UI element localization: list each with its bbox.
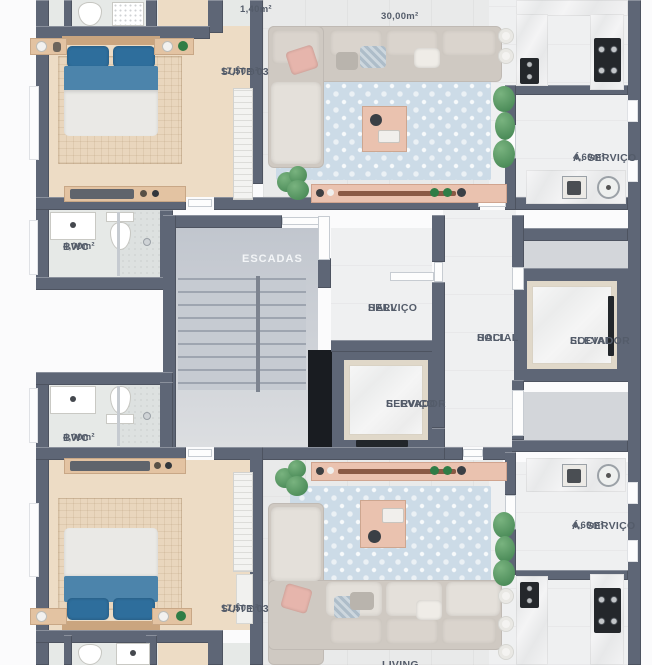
door — [188, 199, 212, 207]
plant — [493, 86, 517, 170]
floor-buffer-bottom — [524, 392, 628, 440]
shower-tray — [112, 2, 144, 26]
decor — [327, 189, 334, 196]
plant — [493, 512, 517, 586]
pillow — [360, 46, 386, 68]
door — [512, 390, 524, 436]
wall — [432, 215, 445, 262]
bench — [70, 461, 150, 471]
plate — [498, 28, 514, 44]
washer-door — [567, 469, 581, 483]
decor — [457, 188, 466, 197]
window — [627, 100, 638, 122]
plant-pot — [430, 188, 439, 197]
window — [29, 86, 39, 160]
pillow — [336, 52, 358, 70]
nightstand — [154, 38, 194, 55]
plate — [498, 48, 514, 64]
wall — [214, 447, 445, 460]
washer-door — [567, 181, 581, 195]
decor — [140, 190, 147, 197]
decor — [327, 467, 334, 474]
decor — [154, 462, 161, 469]
wall — [318, 258, 331, 288]
plant-pot — [443, 466, 452, 475]
door — [318, 216, 330, 260]
floor-plan: 1,40m² 30,00m² SUÍTE 03 17,50m² Á. SERVI… — [0, 0, 652, 665]
lamp — [36, 611, 47, 622]
kettle — [368, 530, 381, 543]
bed-pillow — [67, 598, 109, 620]
bed-blanket — [64, 66, 158, 92]
decor — [457, 466, 466, 475]
sofa-cushion — [330, 618, 382, 644]
bed-headboard — [62, 36, 160, 45]
window — [627, 482, 638, 504]
drain — [606, 473, 611, 478]
plant-pot — [443, 188, 452, 197]
window — [29, 388, 38, 443]
stove — [594, 38, 621, 82]
pillow — [416, 600, 442, 620]
lamp — [158, 611, 169, 622]
drain — [606, 185, 611, 190]
plant-pot — [176, 611, 186, 621]
door — [512, 267, 524, 290]
faucet — [70, 396, 76, 402]
faucet — [130, 650, 136, 656]
lamp — [162, 41, 173, 52]
tray — [382, 508, 404, 523]
sofa-cushion — [386, 618, 438, 644]
tray — [378, 130, 400, 143]
wall — [208, 0, 223, 33]
plant-pot — [430, 466, 439, 475]
coffee-table — [362, 106, 407, 152]
elevator-shaft — [308, 350, 332, 452]
wall — [36, 372, 173, 385]
plant-pot — [178, 41, 188, 51]
wall — [36, 277, 173, 290]
wall — [524, 228, 628, 241]
decor — [53, 42, 61, 52]
shower-drain — [143, 412, 151, 420]
decor — [316, 467, 324, 475]
bed-pillow — [67, 46, 109, 68]
plate — [498, 588, 514, 604]
toilet-tank — [106, 414, 134, 424]
wall — [208, 630, 223, 665]
bed-pillow — [113, 46, 155, 68]
door — [434, 262, 443, 282]
toilet-tank — [106, 212, 134, 222]
lamp — [36, 41, 47, 52]
cooktop — [520, 58, 539, 84]
sofa-cushion — [442, 618, 496, 644]
plate — [498, 644, 514, 660]
bed-headboard — [62, 621, 160, 630]
elevador-social-cab — [527, 281, 617, 369]
stove — [594, 588, 621, 633]
faucet — [70, 222, 76, 228]
window — [29, 220, 38, 275]
bed-duvet — [64, 90, 158, 136]
wall — [512, 440, 628, 452]
bed-duvet — [64, 528, 158, 578]
floor-hall-servico — [331, 228, 432, 342]
stair-rail — [256, 276, 260, 392]
plate — [498, 616, 514, 632]
window — [627, 540, 638, 562]
wall — [331, 340, 441, 352]
door — [188, 449, 212, 457]
stairs — [178, 278, 306, 390]
bed — [62, 36, 160, 136]
pillow — [350, 592, 374, 610]
sofa-chaise — [271, 507, 321, 581]
bed — [62, 528, 160, 630]
kettle — [370, 114, 382, 126]
wardrobe — [233, 472, 253, 572]
door — [463, 449, 483, 457]
closet-shelf — [236, 574, 253, 624]
glass-divider — [117, 212, 120, 276]
door — [390, 272, 434, 281]
floor-hall-social — [443, 210, 516, 447]
cooktop — [520, 582, 539, 608]
bed-pillow — [113, 598, 155, 620]
shower-drain — [143, 238, 151, 246]
sofa-chaise — [271, 82, 321, 164]
wall — [36, 630, 210, 643]
wall — [445, 447, 463, 460]
decor — [152, 190, 159, 197]
floor-buffer-top — [524, 241, 628, 270]
glass-divider — [117, 386, 120, 446]
wall — [64, 635, 72, 665]
bench — [70, 189, 134, 199]
elevador-servico-sill — [356, 440, 408, 447]
plant — [277, 166, 311, 202]
wardrobe — [233, 88, 253, 200]
sofa-cushion — [442, 30, 496, 56]
decor — [165, 462, 172, 469]
plant — [275, 460, 311, 498]
decor — [316, 189, 324, 197]
sofa-cushion — [446, 582, 500, 616]
pillow — [414, 48, 440, 68]
wall — [176, 215, 282, 228]
window — [29, 503, 39, 577]
